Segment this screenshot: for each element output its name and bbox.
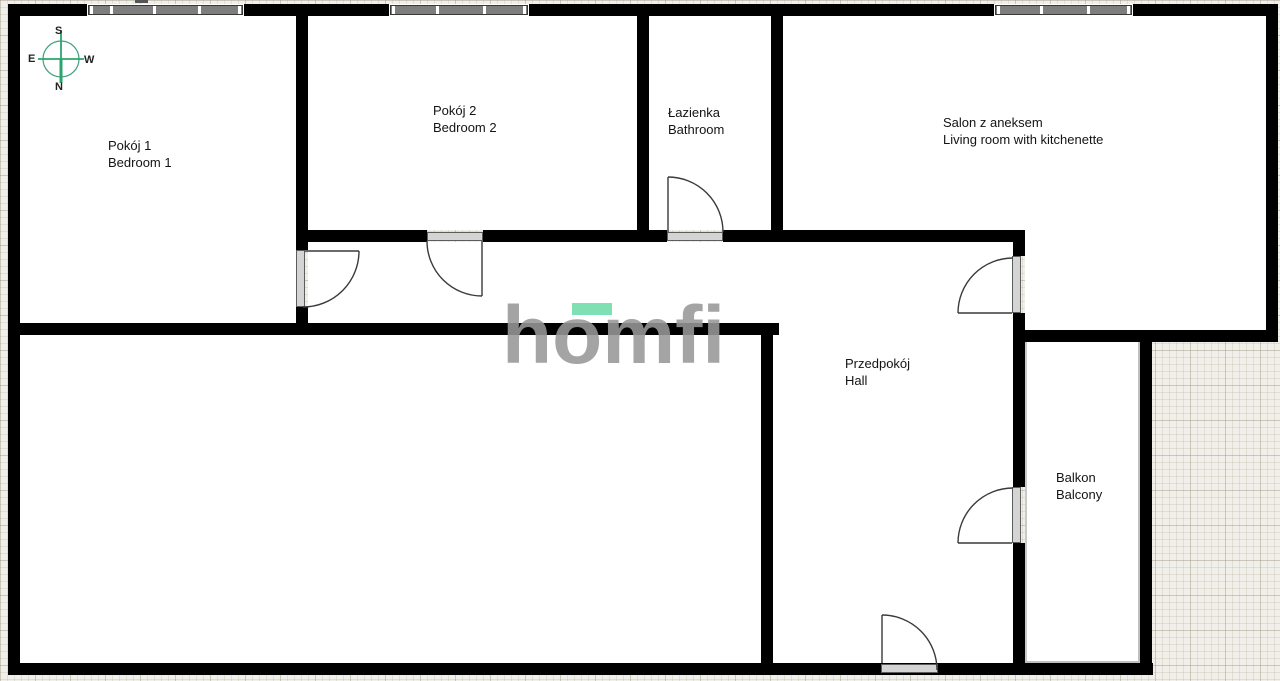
compass-rose: S N E W xyxy=(24,20,102,98)
room-label-living-room: Salon z aneksem Living room with kitchen… xyxy=(943,114,1103,148)
wall-corridor-top-c xyxy=(723,230,1025,242)
window-bedroom2 xyxy=(390,5,528,15)
door-slab-living xyxy=(1012,256,1021,313)
room-name-pl: Pokój 2 xyxy=(433,102,497,119)
homfi-watermark: homfi xyxy=(502,295,725,377)
room-label-balcony: Balkon Balcony xyxy=(1056,469,1102,503)
wall-bathroom-living xyxy=(771,16,783,242)
door-slab-entrance xyxy=(881,664,938,673)
watermark-letter-h: h xyxy=(502,290,552,381)
floor-plan: Pokój 1 Bedroom 1 Pokój 2 Bedroom 2 Łazi… xyxy=(0,0,1280,681)
room-label-hall: Przedpokój Hall xyxy=(845,355,910,389)
room-label-bedroom2: Pokój 2 Bedroom 2 xyxy=(433,102,497,136)
wall-right xyxy=(1266,4,1278,342)
wall-bedroom2-bathroom xyxy=(637,16,649,242)
wall-bedroom1-right-lower xyxy=(296,307,308,335)
room-bottom-left-area xyxy=(20,335,761,663)
watermark-accent-bar xyxy=(572,303,612,315)
room-name-pl: Pokój 1 xyxy=(108,137,172,154)
door-slab-bedroom2 xyxy=(427,232,483,241)
room-name-en: Bedroom 2 xyxy=(433,119,497,136)
room-name-en: Bathroom xyxy=(668,121,724,138)
window-living-room xyxy=(995,5,1132,15)
wall-hall-living-c xyxy=(1013,543,1025,663)
door-slab-balcony xyxy=(1012,487,1021,543)
room-name-pl: Przedpokój xyxy=(845,355,910,372)
room-name-en: Hall xyxy=(845,372,910,389)
wall-bedroom1-right-upper xyxy=(296,16,308,250)
compass-north: N xyxy=(55,81,63,93)
dimension-mark xyxy=(135,0,148,3)
room-name-pl: Balkon xyxy=(1056,469,1102,486)
door-slab-bathroom xyxy=(667,232,723,241)
wall-balcony-right xyxy=(1140,342,1152,663)
door-slab-bedroom1 xyxy=(296,250,305,307)
watermark-letters-mfi: mfi xyxy=(602,290,725,381)
wall-hall-living-a xyxy=(1013,230,1025,256)
room-living-nook-area xyxy=(1025,230,1266,330)
wall-corridor-top-a xyxy=(296,230,427,242)
window-bedroom1 xyxy=(88,5,243,15)
room-name-en: Bedroom 1 xyxy=(108,154,172,171)
room-name-pl: Łazienka xyxy=(668,104,724,121)
room-name-pl: Salon z aneksem xyxy=(943,114,1103,131)
wall-left xyxy=(8,4,20,675)
room-name-en: Balcony xyxy=(1056,486,1102,503)
room-label-bedroom1: Pokój 1 Bedroom 1 xyxy=(108,137,172,171)
room-label-bathroom: Łazienka Bathroom xyxy=(668,104,724,138)
wall-nook-bottom xyxy=(1013,330,1278,342)
compass-west: W xyxy=(84,54,94,66)
room-name-en: Living room with kitchenette xyxy=(943,131,1103,148)
wall-bottom xyxy=(8,663,1153,675)
compass-south: S xyxy=(55,25,62,37)
compass-east: E xyxy=(28,53,35,65)
wall-bottomroom-hall xyxy=(761,335,773,663)
